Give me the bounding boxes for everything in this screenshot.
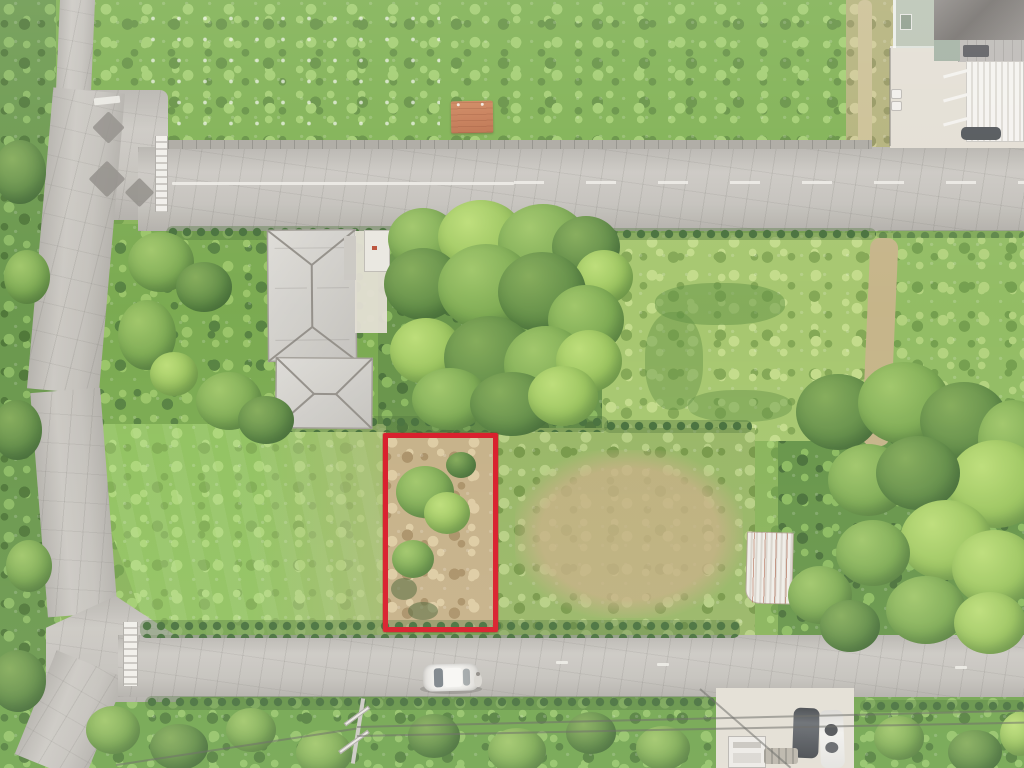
tree bbox=[820, 600, 880, 652]
center-line-dashed bbox=[514, 181, 1024, 184]
bush bbox=[150, 724, 208, 768]
neighbor-house-wall bbox=[934, 40, 960, 61]
neighbor-house-window bbox=[900, 14, 912, 30]
field-dark-patch bbox=[688, 390, 792, 422]
field-boundary-hedge bbox=[604, 420, 752, 433]
roof-vent bbox=[963, 45, 989, 57]
center-line-solid bbox=[172, 182, 514, 185]
gutter-strip bbox=[155, 136, 168, 212]
bush bbox=[874, 716, 924, 760]
windshield bbox=[434, 668, 443, 687]
tree bbox=[176, 262, 232, 312]
tree bbox=[954, 592, 1024, 654]
bush bbox=[86, 706, 140, 754]
rear-window bbox=[463, 669, 470, 686]
side-road-upper bbox=[56, 0, 96, 99]
dry-patch bbox=[515, 450, 743, 618]
tree bbox=[528, 366, 598, 426]
bush bbox=[636, 726, 690, 768]
truck-detail bbox=[733, 753, 761, 763]
orange-shed-roof bbox=[451, 101, 494, 134]
car-roof bbox=[444, 668, 462, 687]
rusted-metal-shed-roof bbox=[745, 531, 794, 604]
tree bbox=[886, 576, 966, 644]
entrance-structure bbox=[364, 230, 390, 272]
bush bbox=[566, 712, 616, 754]
tree bbox=[836, 520, 910, 586]
parcel-outline-annotation bbox=[383, 433, 498, 632]
ac-unit bbox=[891, 89, 902, 99]
retaining-wall bbox=[168, 140, 872, 149]
dark-car-under-carport bbox=[961, 127, 1001, 140]
white-suv bbox=[819, 710, 845, 768]
field-dark-patch bbox=[645, 312, 703, 410]
rear-window bbox=[825, 742, 838, 753]
white-car bbox=[423, 663, 480, 691]
entrance-marker bbox=[372, 246, 377, 250]
road-stud bbox=[657, 663, 669, 666]
neighbor-house-roof bbox=[934, 0, 1024, 42]
tree bbox=[238, 396, 294, 444]
bush bbox=[948, 730, 1002, 768]
tree bbox=[876, 436, 960, 510]
shed-fastener bbox=[481, 103, 484, 106]
bush bbox=[6, 540, 52, 592]
aerial-photo bbox=[0, 0, 1024, 768]
bush bbox=[4, 250, 50, 304]
person bbox=[474, 674, 482, 687]
roadside-hedge bbox=[145, 696, 715, 710]
roadside-hedge bbox=[606, 228, 876, 240]
dirt-path bbox=[858, 0, 872, 146]
road-stud bbox=[556, 661, 568, 664]
truck-detail bbox=[733, 742, 761, 748]
person-head bbox=[476, 672, 480, 676]
shed-fastener bbox=[457, 103, 460, 106]
lower-road bbox=[118, 635, 1024, 697]
road-stud bbox=[955, 666, 967, 669]
roadside-hedge bbox=[876, 230, 1024, 238]
gutter-strip bbox=[123, 622, 138, 686]
wildflowers bbox=[140, 8, 440, 133]
tree bbox=[150, 352, 198, 396]
porch-roof bbox=[344, 236, 356, 280]
bush bbox=[408, 714, 460, 758]
ac-unit bbox=[891, 101, 902, 111]
boundary-fence bbox=[889, 48, 891, 146]
